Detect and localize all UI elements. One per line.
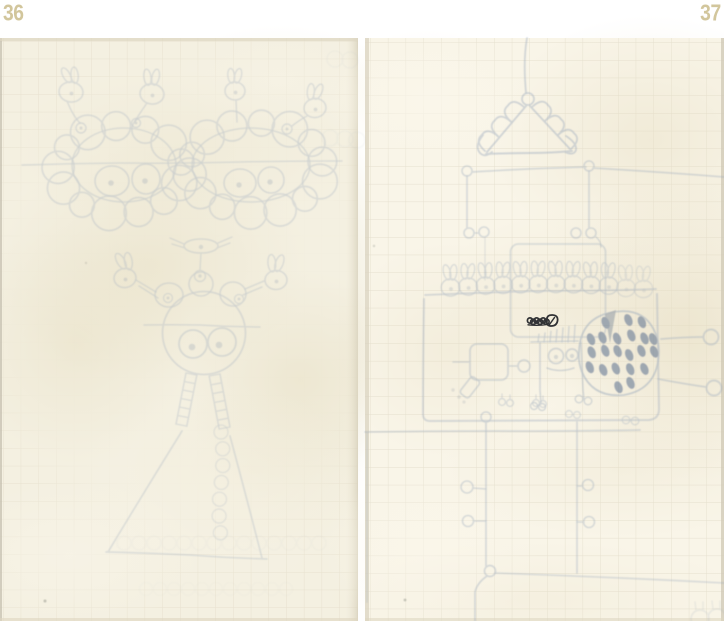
- svg-text:36: 36: [3, 0, 24, 26]
- svg-text:37: 37: [700, 0, 721, 26]
